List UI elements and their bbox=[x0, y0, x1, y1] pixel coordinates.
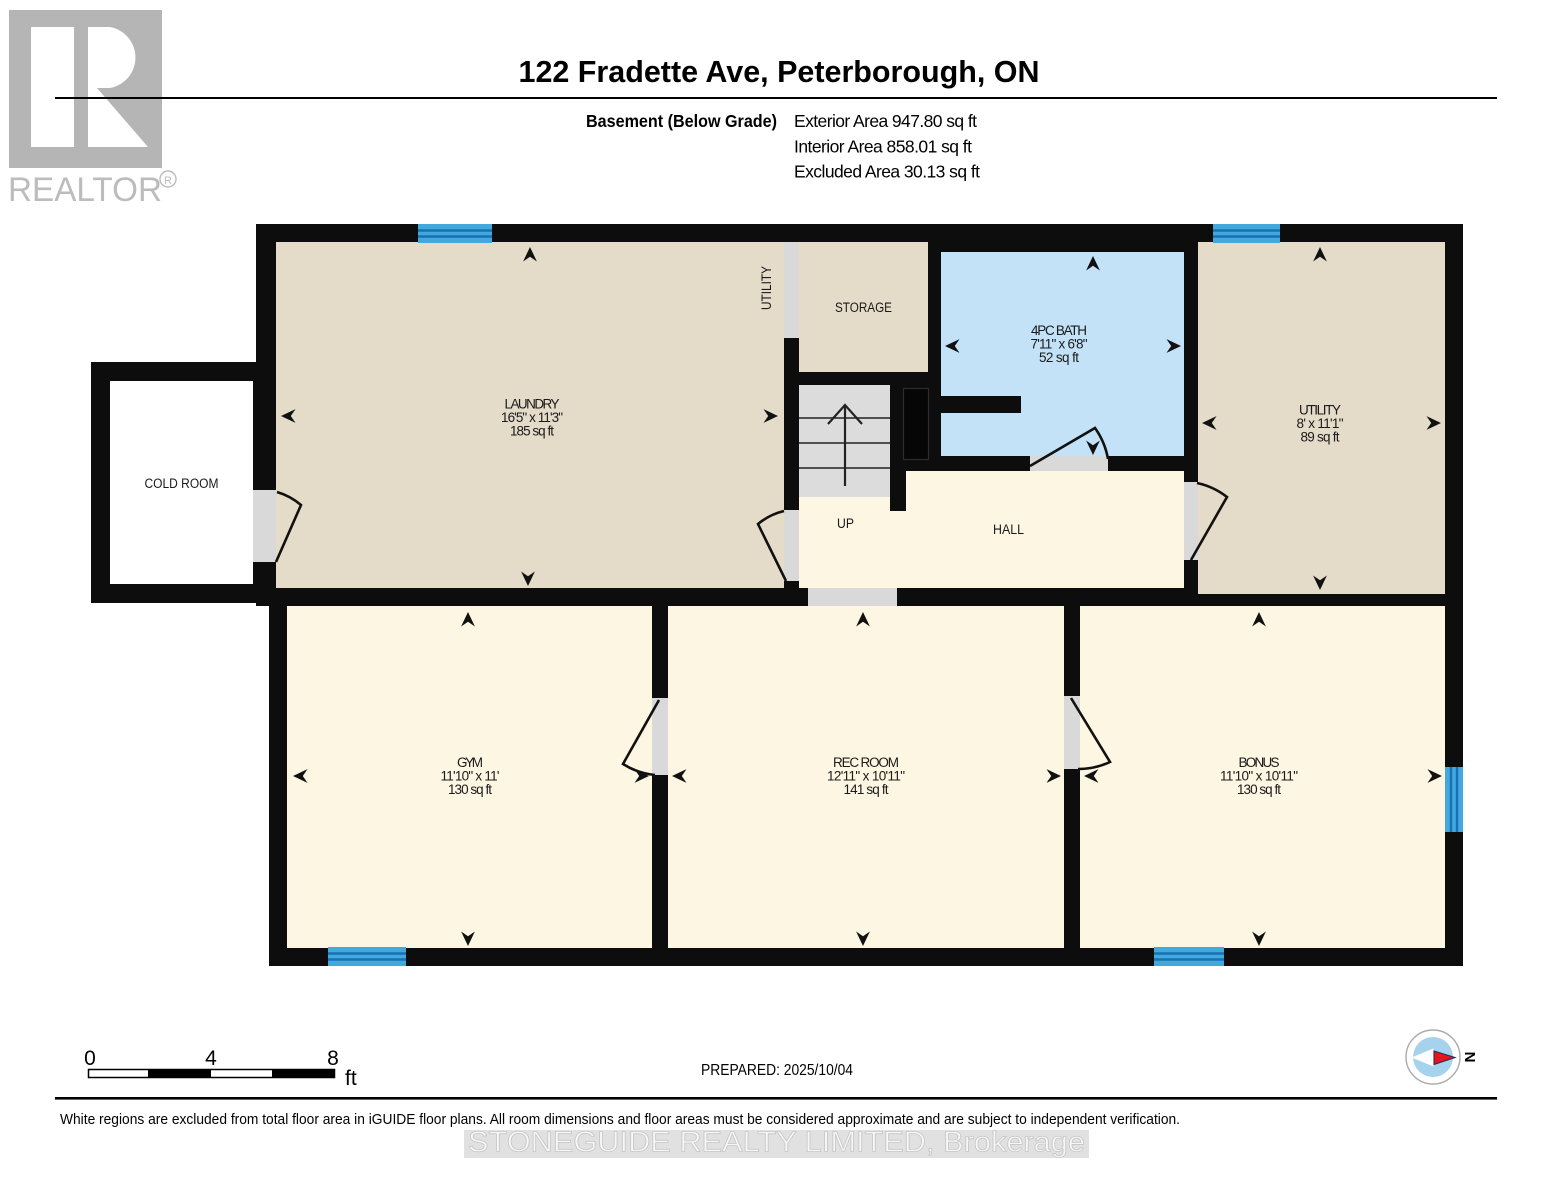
svg-text:130 sq ft: 130 sq ft bbox=[448, 782, 492, 797]
svg-text:122 Fradette Ave, Peterborough: 122 Fradette Ave, Peterborough, ON bbox=[519, 54, 1040, 89]
svg-text:0: 0 bbox=[84, 1047, 96, 1070]
svg-text:141 sq ft: 141 sq ft bbox=[844, 782, 889, 797]
svg-text:PREPARED: 2025/10/04: PREPARED: 2025/10/04 bbox=[701, 1062, 853, 1079]
svg-text:52 sq ft: 52 sq ft bbox=[1039, 350, 1079, 365]
svg-text:UP: UP bbox=[837, 516, 854, 531]
svg-text:Basement (Below Grade): Basement (Below Grade) bbox=[586, 111, 777, 131]
svg-text:185 sq ft: 185 sq ft bbox=[510, 424, 554, 439]
svg-text:ft: ft bbox=[345, 1067, 357, 1090]
svg-text:N: N bbox=[1461, 1052, 1478, 1063]
svg-text:REALTOR: REALTOR bbox=[8, 171, 162, 209]
svg-text:Exterior Area 947.80 sq ft: Exterior Area 947.80 sq ft bbox=[794, 111, 977, 131]
svg-text:White regions are excluded fro: White regions are excluded from total fl… bbox=[60, 1111, 1180, 1128]
svg-text:130 sq ft: 130 sq ft bbox=[1237, 782, 1281, 797]
svg-text:HALL: HALL bbox=[993, 522, 1024, 537]
svg-text:STONEGUIDE REALTY LIMITED, Bro: STONEGUIDE REALTY LIMITED, Brokerage bbox=[468, 1127, 1085, 1159]
svg-text:89 sq ft: 89 sq ft bbox=[1301, 430, 1340, 445]
svg-text:8: 8 bbox=[327, 1047, 339, 1070]
svg-text:Interior Area 858.01 sq ft: Interior Area 858.01 sq ft bbox=[794, 136, 972, 156]
svg-text:UTILITY: UTILITY bbox=[759, 266, 774, 310]
svg-text:4: 4 bbox=[205, 1047, 217, 1070]
svg-text:R: R bbox=[164, 175, 172, 187]
svg-text:COLD ROOM: COLD ROOM bbox=[145, 476, 219, 491]
svg-text:Excluded Area 30.13 sq ft: Excluded Area 30.13 sq ft bbox=[794, 162, 980, 182]
svg-text:STORAGE: STORAGE bbox=[835, 300, 892, 315]
